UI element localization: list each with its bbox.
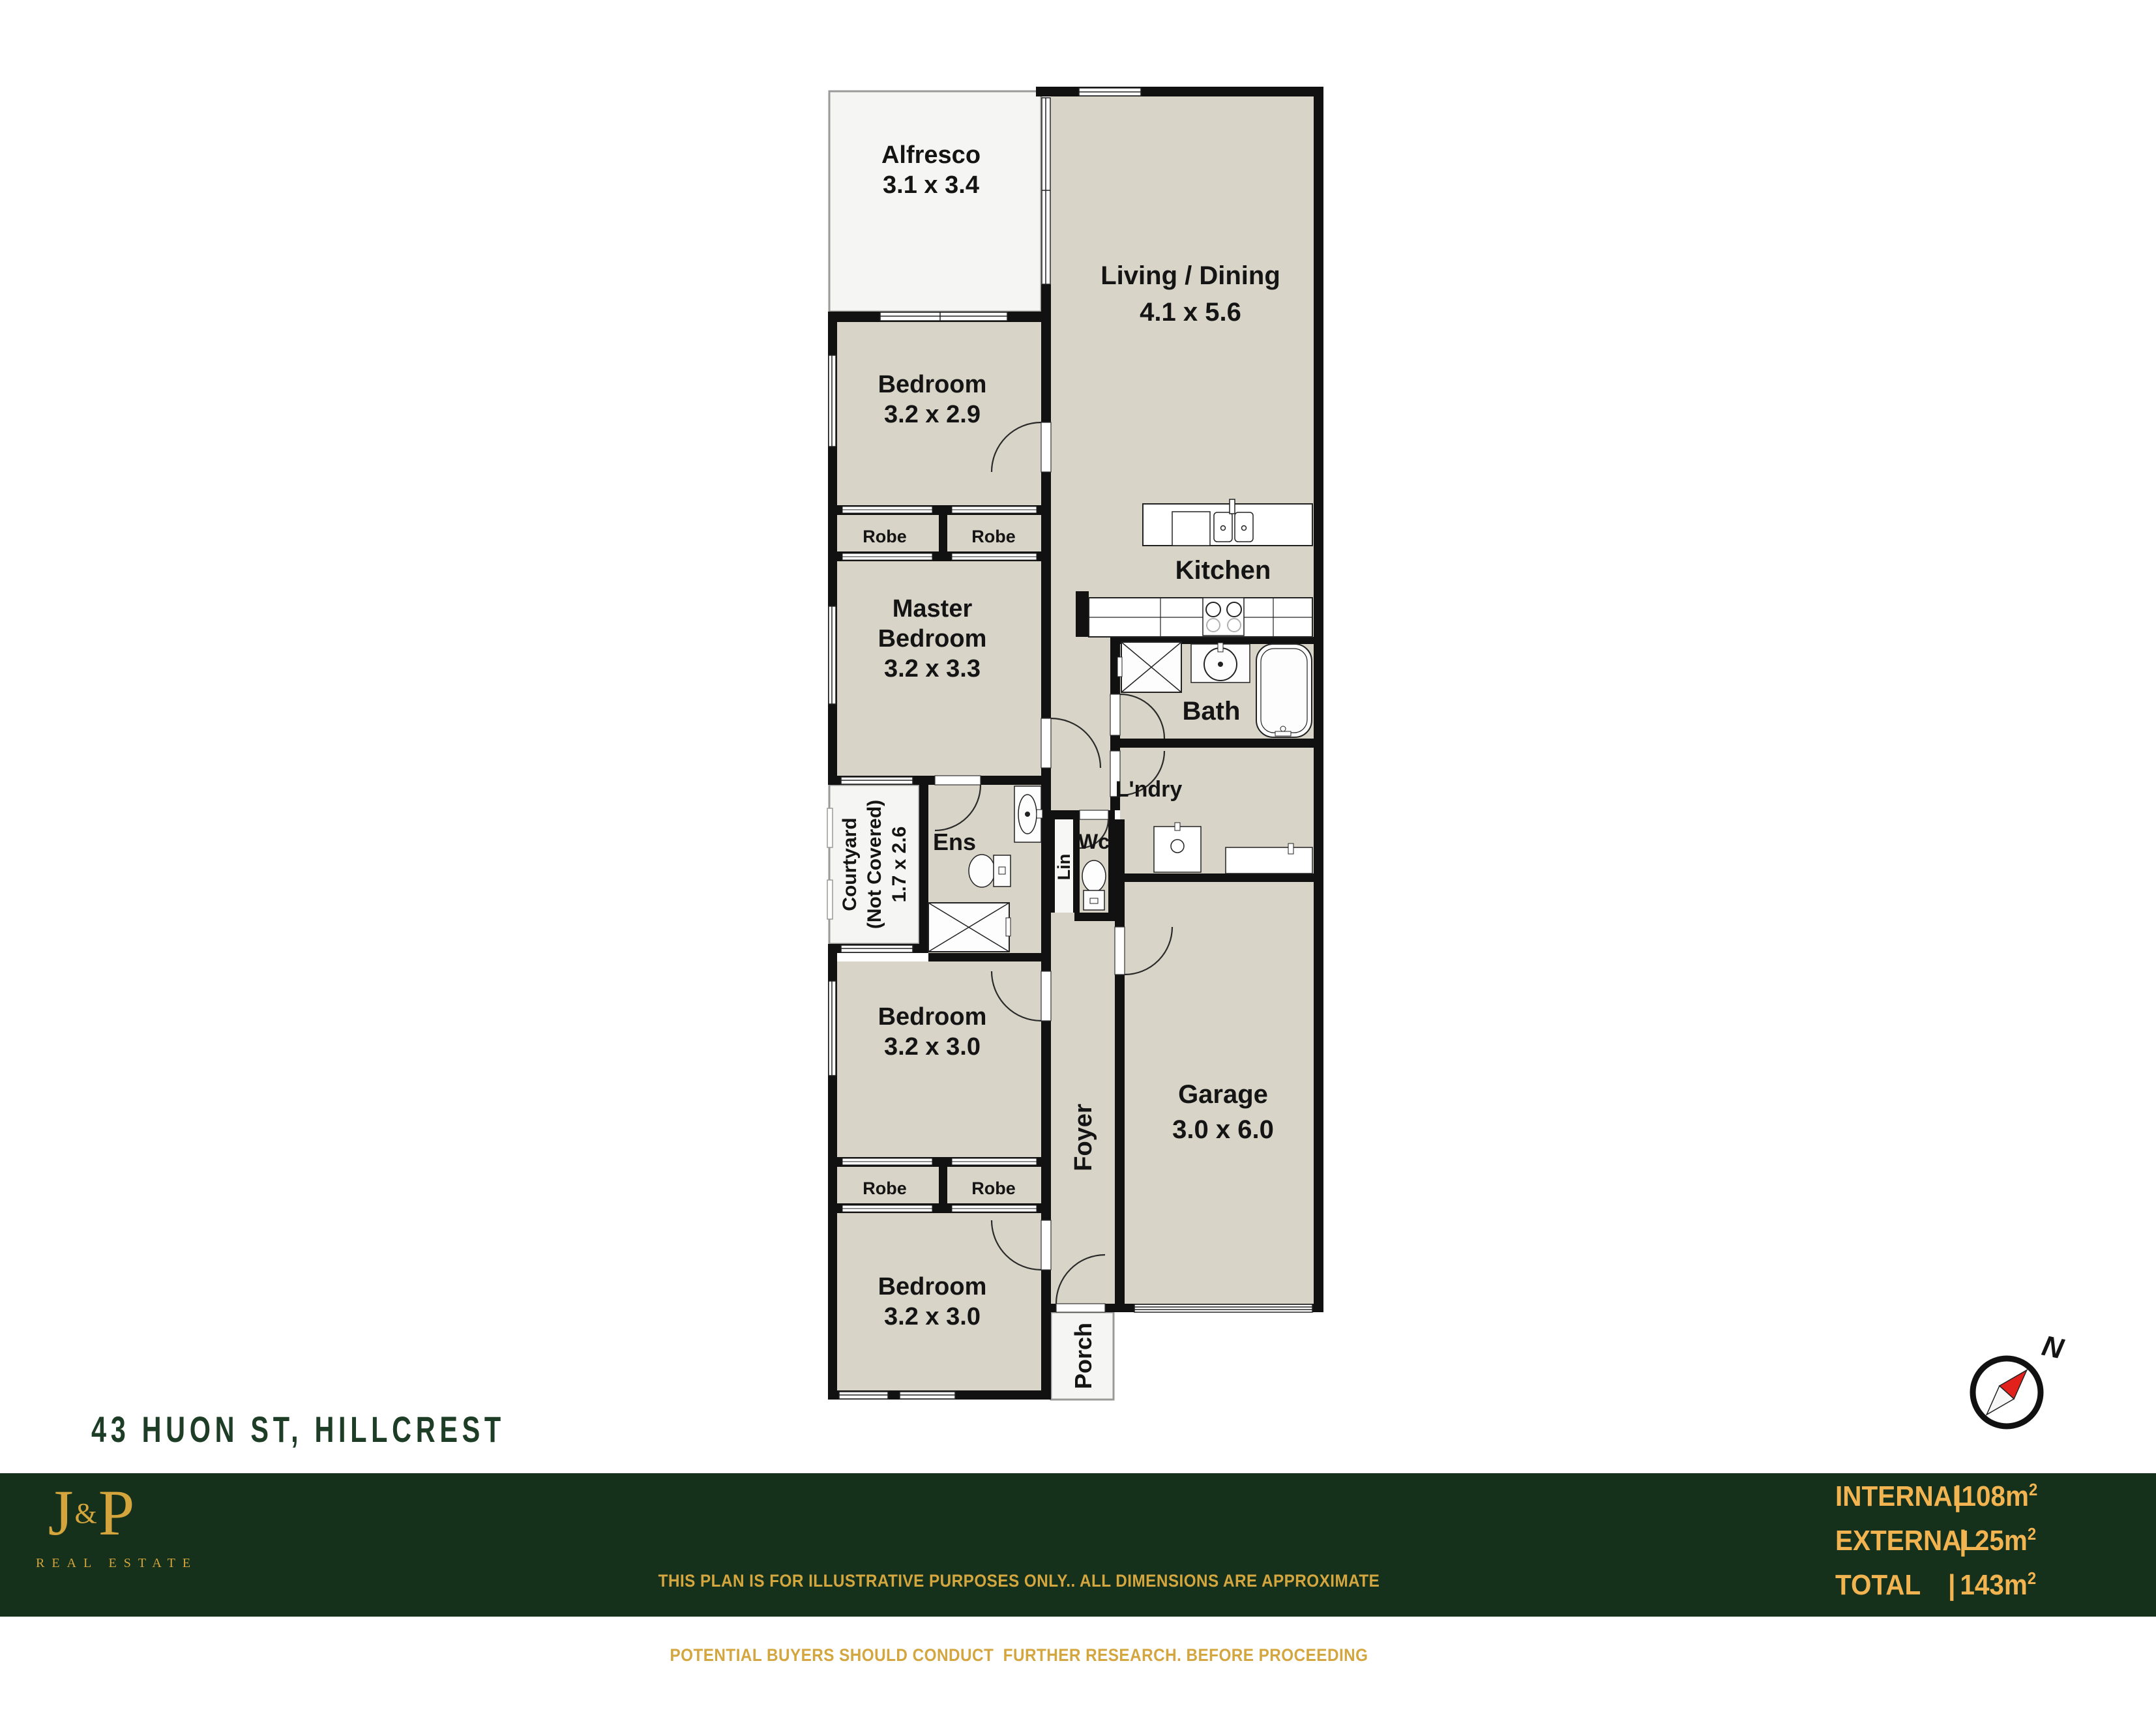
agency-logo-subtitle: REAL ESTATE	[36, 1556, 147, 1571]
linen-label: Lin	[1054, 854, 1074, 881]
master-label-1: Master	[893, 595, 973, 623]
master-left-window	[829, 606, 836, 704]
kitchen-faucet	[1230, 499, 1235, 514]
footer-bar: J&P REAL ESTATE THIS PLAN IS FOR ILLUSTR…	[0, 1473, 2156, 1617]
area-value: 25m2	[1972, 1524, 2036, 1557]
page-title: 43 HUON ST, HILLCREST	[91, 1408, 505, 1450]
kitchen-label: Kitchen	[1175, 556, 1271, 585]
bath-door	[1110, 694, 1120, 735]
area-separator: |	[1954, 1525, 1972, 1557]
compass-north-label: N	[2039, 1330, 2067, 1366]
area-label: INTERNAL	[1835, 1480, 1954, 1513]
wc-label: Wc	[1078, 830, 1110, 853]
courtyard-bottom-window	[841, 945, 913, 952]
laundry-bench	[1226, 844, 1312, 873]
bath-vanity	[1191, 643, 1250, 682]
alfresco-bedroom-window	[880, 312, 1007, 321]
bedroom-mid-left-window	[829, 981, 836, 1076]
disclaimer-line-2: POTENTIAL BUYERS SHOULD CONDUCT FURTHER …	[658, 1643, 1380, 1667]
kitchen-counter	[1089, 598, 1312, 637]
area-value: 143m2	[1960, 1568, 2036, 1602]
master-door	[1041, 718, 1051, 768]
agency-logo: J&P REAL ESTATE	[36, 1478, 147, 1571]
ens-shower	[928, 903, 1011, 952]
compass: N	[1956, 1317, 2073, 1434]
area-label: TOTAL	[1835, 1569, 1943, 1602]
bedroom-bottom-label: Bedroom	[878, 1273, 987, 1300]
area-separator: |	[1943, 1569, 1960, 1602]
master-dims: 3.2 x 3.3	[884, 655, 981, 682]
ens-shower-tap	[1006, 918, 1011, 936]
courtyard-note: (Not Covered)	[864, 800, 885, 929]
kitchen-island	[1143, 499, 1312, 546]
bedroom-mid-label: Bedroom	[878, 1003, 987, 1031]
bedroom-bottom-dims: 3.2 x 3.0	[884, 1303, 981, 1330]
area-row-external: EXTERNAL | 25m2	[1835, 1524, 2036, 1557]
wc-toilet	[1082, 860, 1106, 910]
garage-internal-door	[1115, 927, 1125, 975]
area-row-total: TOTAL | 143m2	[1835, 1568, 2036, 1602]
bedroom-top-left-window	[829, 355, 836, 447]
alfresco-dims: 3.1 x 3.4	[883, 171, 979, 199]
area-value: 108m2	[1961, 1480, 2037, 1513]
area-summary: INTERNAL | 108m2 EXTERNAL | 25m2 TOTAL |…	[1835, 1480, 2036, 1613]
cooktop	[1203, 598, 1244, 636]
robe-bottom-left-label: Robe	[863, 1179, 907, 1198]
floor-plan: Alfresco 3.1 x 3.4 Living / Dining 4.1 x…	[815, 78, 1343, 1415]
logo-ampersand: &	[75, 1497, 97, 1529]
bedroom-bottom-window-b	[900, 1392, 955, 1399]
porch-label: Porch	[1070, 1323, 1097, 1389]
bedroom-bottom-floor	[837, 1213, 1041, 1390]
garage-door	[1134, 1304, 1312, 1312]
robe-top-right-label: Robe	[971, 527, 1016, 546]
laundry-trough	[1154, 823, 1201, 872]
ens-toilet	[969, 855, 1011, 887]
bathtub	[1256, 644, 1312, 737]
front-door	[1056, 1304, 1105, 1312]
living-label: Living / Dining	[1100, 261, 1280, 290]
alfresco-label: Alfresco	[881, 141, 981, 169]
ens-vanity	[1014, 786, 1042, 842]
area-row-internal: INTERNAL | 108m2	[1835, 1480, 2036, 1513]
area-label: EXTERNAL	[1835, 1525, 1954, 1557]
shower-tap	[1117, 657, 1122, 677]
living-dims: 4.1 x 5.6	[1140, 298, 1241, 327]
garage-dims: 3.0 x 6.0	[1172, 1115, 1274, 1144]
bedroom-top-label: Bedroom	[878, 371, 987, 398]
bedroom-top-door	[1041, 422, 1051, 472]
courtyard-dims: 1.7 x 2.6	[889, 827, 910, 903]
bath-label: Bath	[1183, 697, 1241, 726]
bath-shower	[1117, 642, 1181, 692]
disclaimer: THIS PLAN IS FOR ILLUSTRATIVE PURPOSES O…	[658, 1519, 1380, 1717]
ens-door	[935, 776, 981, 785]
wc-door	[1080, 810, 1108, 819]
disclaimer-line-1: THIS PLAN IS FOR ILLUSTRATIVE PURPOSES O…	[658, 1568, 1380, 1593]
foyer-label: Foyer	[1070, 1104, 1097, 1171]
garage-label: Garage	[1178, 1080, 1268, 1109]
hall-foyer-floor	[1051, 637, 1115, 1306]
master-label-2: Bedroom	[878, 625, 987, 653]
bedroom-mid-door	[1041, 971, 1051, 1021]
laundry-label: L'ndry	[1115, 777, 1183, 802]
alfresco-floor	[829, 91, 1041, 312]
robe-bottom-right-label: Robe	[971, 1179, 1016, 1198]
courtyard-label: Courtyard	[839, 817, 861, 911]
ens-vanity-faucet	[1037, 810, 1042, 818]
bedroom-bottom-window-a	[839, 1392, 888, 1399]
bedroom-mid-dims: 3.2 x 3.0	[884, 1033, 981, 1061]
robe-top-left-label: Robe	[863, 527, 907, 546]
alfresco-sliding-door	[1042, 98, 1050, 284]
bedroom-bottom-door	[1041, 1220, 1051, 1270]
vanity-faucet	[1218, 643, 1223, 652]
area-separator: |	[1954, 1480, 1961, 1513]
courtyard-top-window	[841, 777, 913, 784]
dishwasher	[1172, 512, 1210, 546]
bedroom-top-dims: 3.2 x 2.9	[884, 401, 981, 428]
agency-logo-monogram: J&P	[36, 1478, 147, 1547]
ens-label: Ens	[933, 829, 976, 855]
living-top-window	[1079, 88, 1141, 96]
